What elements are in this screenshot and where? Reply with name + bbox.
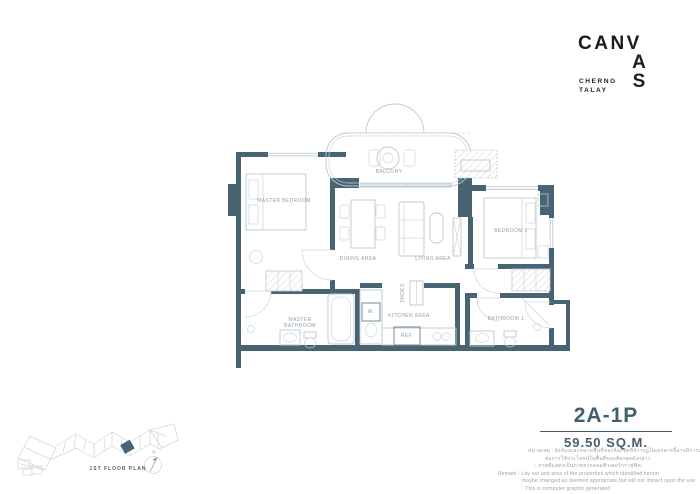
logo-subtitle-line2: TALAY [579,87,608,94]
unit-badge: 2A-1P 59.50 SQ.M. [540,404,672,450]
logo-subtitle-line1: CHERNG [579,78,617,85]
north-letter: N [152,450,155,455]
master-bath-shower-icon [248,326,255,333]
label-master-bathroom-line2: BATHROOM [284,323,316,329]
remark-en-line2: maybe changed as deemed appropriate,but … [498,478,698,486]
remark-en-line1: Remark : Lay out and area of the propert… [498,471,698,479]
master-ottoman [250,251,263,264]
dining-table [340,200,385,248]
tv-console [453,218,461,256]
label-shoes: SHOES [400,283,406,303]
remark-thai-line1: หมายเหตุ : ผังห้องและขนาดพื้นที่ของห้องช… [498,448,698,456]
balcony-table [369,147,415,169]
shoes-cabinet [410,281,423,305]
label-master-bathroom: MASTER BATHROOM [284,317,316,330]
remark-en-line3: : This is computer graphic generated [498,486,698,494]
bathroom1-shower [522,298,549,331]
label-bathroom-1: BATHROOM 1 [488,316,525,322]
badge-divider [540,431,672,432]
master-wardrobe [266,271,302,291]
label-balcony: BALCONY [376,169,403,175]
label-dining-area: DINING AREA [340,256,377,262]
label-living-area: LIVING AREA [415,256,451,262]
remark-block: หมายเหตุ : ผังห้องและขนาดพื้นที่ของห้องช… [498,448,698,493]
master-bath-vanity [280,330,300,345]
site-plan-caption: 1ST FLOOR PLAN [89,466,146,472]
label-refrigerator: REF. [401,333,413,339]
bathroom1-toilet [504,331,516,347]
coffee-table [430,213,443,243]
label-washer: W. [368,309,375,315]
remark-thai-line3: : ภาพที่แสดงเป็นภาพจากคอมพิวเตอร์กราฟฟิค [498,463,698,471]
label-master-bedroom: MASTER BEDROOM [257,198,311,204]
logo-s-text: S [630,71,648,93]
label-kitchen-area: KITCHEN AREA [388,313,429,319]
ac-ledge [455,150,497,178]
bathroom1-vanity [470,331,494,346]
remark-thai-line2: ต่อการใช้ประโยชน์ในพื้นที่ของห้องชุดดังก… [498,456,698,464]
label-bedroom-1: BEDROOM 1 [494,228,528,234]
bathtub [328,294,354,344]
bedroom1-bed [484,194,548,258]
floor-plan-page: MASTER BEDROOM BALCONY DINING AREA LIVIN… [0,0,700,494]
unit-code: 2A-1P [540,404,672,428]
north-compass-icon [145,457,162,474]
living-sofa [399,202,424,256]
bedroom1-wardrobe [512,269,550,291]
